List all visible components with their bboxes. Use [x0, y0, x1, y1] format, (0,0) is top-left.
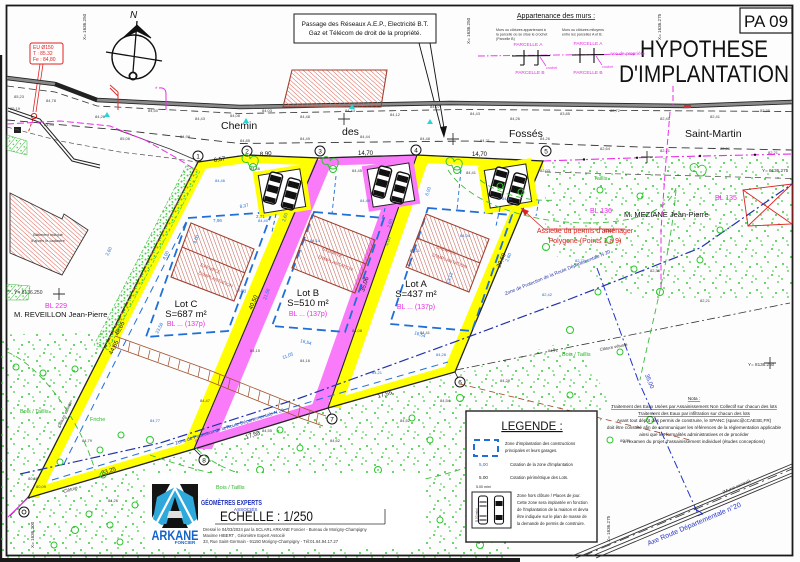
svg-text:84,41: 84,41	[502, 196, 513, 201]
svg-text:5.00: 5.00	[479, 475, 488, 480]
svg-text:84,62: 84,62	[330, 438, 341, 443]
svg-text:N: N	[130, 10, 138, 21]
svg-text:S=687 m²: S=687 m²	[165, 309, 206, 320]
svg-text:Zone d'implantation des constr: Zone d'implantation des constructions	[505, 441, 575, 446]
svg-text:Cette zone sera implantée en f: Cette zone sera implantée en fonction	[517, 500, 588, 505]
svg-text:84,45: 84,45	[352, 168, 363, 173]
svg-text:82,64: 82,64	[600, 146, 611, 151]
svg-text:84,77: 84,77	[150, 418, 161, 423]
svg-text:80,09: 80,09	[36, 484, 47, 489]
svg-text:82,71: 82,71	[575, 258, 586, 263]
svg-text:84,21: 84,21	[372, 370, 383, 375]
svg-text:6: 6	[458, 380, 462, 387]
svg-text:axe de propriété: axe de propriété	[610, 51, 645, 57]
svg-text:X= 1636.275: X= 1636.275	[657, 13, 662, 40]
svg-text:Nota :: Nota :	[688, 396, 700, 401]
svg-text:14,70: 14,70	[358, 151, 374, 157]
svg-text:crochet: crochet	[602, 65, 613, 69]
svg-text:84,26: 84,26	[510, 116, 521, 121]
svg-text:PARCELLE B: PARCELLE B	[515, 70, 544, 76]
svg-text:84,44: 84,44	[360, 134, 371, 139]
svg-text:7,96: 7,96	[213, 218, 222, 223]
svg-text:PARCELLE A: PARCELLE A	[514, 42, 544, 48]
svg-text:des: des	[342, 126, 359, 138]
svg-text:84,85: 84,85	[240, 138, 251, 143]
svg-text:85,19: 85,19	[10, 106, 21, 111]
svg-text:X= 1636.200: X= 1636.200	[30, 521, 35, 548]
svg-text:LEGENDE :: LEGENDE :	[501, 421, 562, 433]
svg-text:Bois / Taillis: Bois / Taillis	[216, 485, 245, 491]
svg-text:PARCELLE B: PARCELLE B	[573, 70, 602, 76]
svg-text:84,15: 84,15	[250, 348, 261, 353]
svg-text:84,49: 84,49	[300, 136, 311, 141]
svg-text:la parcelle où se situe le cro: la parcelle où se situe le crochet	[496, 33, 547, 37]
svg-text:d'après le cadastre: d'après le cadastre	[31, 238, 65, 243]
svg-text:Appartenance des murs :: Appartenance des murs :	[517, 13, 595, 20]
svg-text:83,85: 83,85	[560, 111, 571, 116]
svg-text:84,43: 84,43	[195, 116, 206, 121]
svg-text:X= 1636.275: X= 1636.275	[606, 515, 611, 542]
svg-text:Bois / Taillis: Bois / Taillis	[562, 352, 591, 358]
svg-text:de l'implantation de la maison: de l'implantation de la maison et devra	[517, 507, 589, 512]
svg-text:84,03: 84,03	[262, 108, 273, 113]
svg-text:82,21: 82,21	[768, 150, 779, 155]
svg-text:Y= 8136.250: Y= 8136.250	[14, 290, 43, 296]
svg-text:M. REVEILLON Jean-Pierre: M. REVEILLON Jean-Pierre	[14, 310, 107, 319]
svg-text:entre les parcelles A et B.: entre les parcelles A et B.	[562, 33, 603, 37]
svg-text:84,52: 84,52	[400, 418, 411, 423]
svg-text:Avant tout dépôt des permis de: Avant tout dépôt des permis de construir…	[617, 418, 772, 423]
svg-text:Chemin: Chemin	[221, 120, 257, 132]
svg-text:crochet: crochet	[546, 66, 557, 70]
svg-text:84,54: 84,54	[440, 398, 451, 403]
svg-text:Taillis: Taillis	[594, 176, 608, 182]
svg-text:Bâtiment indiqué: Bâtiment indiqué	[33, 232, 64, 237]
svg-text:84,14: 84,14	[310, 238, 321, 243]
svg-text:5,00: 5,00	[479, 462, 488, 467]
svg-text:84,55: 84,55	[262, 428, 273, 433]
svg-text:84,08: 84,08	[352, 328, 363, 333]
svg-text:principales et leurs garages.: principales et leurs garages.	[505, 448, 557, 453]
svg-text:84,43: 84,43	[345, 108, 356, 113]
svg-text:8,90: 8,90	[260, 151, 273, 158]
svg-text:82,03: 82,03	[540, 168, 551, 173]
svg-text:82,06: 82,06	[720, 146, 731, 151]
svg-text:84,26: 84,26	[108, 498, 119, 503]
svg-text:84,43: 84,43	[470, 111, 481, 116]
svg-text:82,36: 82,36	[650, 268, 661, 273]
svg-text:Murs ou clôtures mitoyens: Murs ou clôtures mitoyens	[562, 28, 604, 32]
svg-text:ECHELLE : 1/250: ECHELLE : 1/250	[220, 509, 313, 524]
svg-text:BL 135: BL 135	[715, 195, 737, 202]
svg-text:84,12: 84,12	[390, 112, 401, 117]
svg-text:84,40: 84,40	[258, 218, 269, 223]
svg-text:82,41: 82,41	[710, 114, 721, 119]
svg-text:84,49: 84,49	[360, 198, 371, 203]
svg-text:84,26: 84,26	[95, 114, 106, 119]
svg-text:84,71: 84,71	[548, 348, 559, 353]
svg-text:Murs ou clôtures appartenant à: Murs ou clôtures appartenant à	[496, 28, 546, 32]
svg-text:82,21: 82,21	[660, 148, 671, 153]
svg-text:BL ... (137p): BL ... (137p)	[167, 321, 205, 328]
svg-text:82,35: 82,35	[760, 108, 771, 113]
svg-text:84,08: 84,08	[230, 113, 241, 118]
svg-text:BL 229: BL 229	[45, 303, 67, 310]
svg-text:8: 8	[202, 458, 206, 465]
svg-text:84,50: 84,50	[148, 108, 159, 113]
svg-text:84,27: 84,27	[430, 104, 441, 109]
svg-text:GÉOMÈTRES EXPERTS: GÉOMÈTRES EXPERTS	[201, 498, 262, 507]
svg-text:14,70: 14,70	[472, 152, 488, 158]
svg-text:82,21: 82,21	[700, 298, 711, 303]
svg-text:Assiette du permis d'aménager: Assiette du permis d'aménager	[537, 228, 634, 235]
svg-text:84,47: 84,47	[200, 398, 211, 403]
svg-text:84,04: 84,04	[460, 233, 471, 238]
svg-text:85,23: 85,23	[14, 94, 25, 99]
svg-text:84,21: 84,21	[410, 248, 421, 253]
svg-text:5: 5	[544, 149, 548, 156]
svg-text:Bois / Taillis: Bois / Taillis	[20, 409, 49, 415]
svg-text:84,78: 84,78	[46, 98, 57, 103]
svg-text:84,26: 84,26	[540, 136, 551, 141]
svg-text:doit être consulté afin de com: doit être consulté afin de communiquer l…	[607, 425, 782, 430]
svg-text:Maxime HIBERT , Géomètre Exper: Maxime HIBERT , Géomètre Expert Associé	[203, 533, 286, 538]
svg-text:BL ... (137p): BL ... (137p)	[289, 311, 327, 318]
svg-text:82,62: 82,62	[604, 228, 615, 233]
svg-text:5.00 mini: 5.00 mini	[476, 485, 491, 489]
svg-text:84,41: 84,41	[420, 330, 431, 335]
svg-text:82,72: 82,72	[610, 108, 621, 113]
svg-text:BL ... (137p): BL ... (137p)	[397, 304, 435, 311]
svg-text:Zone hors clôture / Places de: Zone hors clôture / Places de jour.	[517, 493, 581, 498]
svg-text:Friche: Friche	[90, 417, 105, 423]
svg-text:PARCELLE A: PARCELLE A	[574, 41, 604, 47]
svg-text:84,79: 84,79	[82, 438, 93, 443]
svg-text:7: 7	[330, 417, 334, 424]
svg-text:3: 3	[318, 149, 322, 156]
svg-text:84,46: 84,46	[215, 178, 226, 183]
svg-text:84,98: 84,98	[180, 134, 191, 139]
svg-text:85,06: 85,06	[120, 136, 131, 141]
svg-text:Fossés: Fossés	[509, 128, 543, 140]
svg-text:84,16: 84,16	[300, 358, 311, 363]
svg-text:1: 1	[196, 154, 200, 161]
svg-text:Saint-Martin: Saint-Martin	[685, 128, 742, 140]
svg-text:84,21: 84,21	[480, 138, 491, 143]
svg-text:4: 4	[414, 148, 418, 155]
svg-text:ainsi que les formalités admin: ainsi que les formalités administratives…	[639, 432, 749, 437]
svg-text:84,48: 84,48	[420, 136, 431, 141]
svg-text:Passage des Réseaux A.E.P., E: Passage des Réseaux A.E.P., Electricité …	[302, 21, 429, 28]
svg-text:Y= 8136.275: Y= 8136.275	[762, 168, 789, 173]
svg-text:X= 1636.250: X= 1636.250	[82, 13, 87, 40]
svg-text:Traitement des Eaux par infilt: Traitement des Eaux par infiltration sur…	[638, 411, 751, 416]
svg-text:D'IMPLANTATION: D'IMPLANTATION	[619, 61, 789, 88]
svg-text:(Parcelle B): (Parcelle B)	[496, 37, 515, 41]
svg-text:84,48: 84,48	[300, 114, 311, 119]
svg-text:BL 136: BL 136	[590, 208, 612, 215]
svg-text:Cotation périmétrique des Lots: Cotation périmétrique des Lots.	[510, 475, 568, 480]
svg-text:84,46: 84,46	[250, 166, 261, 171]
svg-text:84,28: 84,28	[436, 352, 447, 357]
svg-text:Fe : 84,80: Fe : 84,80	[33, 57, 56, 63]
svg-text:Traitement des Eaux Usées par: Traitement des Eaux Usées par Assainisse…	[611, 404, 777, 409]
svg-text:S=510 m²: S=510 m²	[287, 298, 328, 309]
svg-text:être indiquée sur le plan de m: être indiquée sur le plan de masse de	[517, 514, 588, 519]
svg-text:Y= 8136.250: Y= 8136.250	[748, 362, 775, 367]
svg-text:la demande de permis de constr: la demande de permis de construire.	[517, 521, 585, 526]
svg-text:33, Rue Saint-Germain - 91150: 33, Rue Saint-Germain - 91150 Morigny-Ch…	[203, 539, 339, 544]
svg-text:PA 09: PA 09	[744, 12, 788, 31]
svg-text:X= 1636.250: X= 1636.250	[466, 17, 471, 44]
svg-text:84,41: 84,41	[466, 170, 477, 175]
svg-text:FONCIER: FONCIER	[175, 540, 196, 545]
svg-text:82,45: 82,45	[660, 116, 671, 121]
svg-text:Cotation de la zone d'implant: Cotation de la zone d'implantation	[510, 462, 574, 467]
svg-text:S=437 m²: S=437 m²	[395, 289, 436, 300]
svg-text:80,58: 80,58	[28, 476, 39, 481]
svg-text:82,42: 82,42	[542, 292, 553, 297]
svg-text:à l'examen du projet d'assaini: à l'examen du projet d'assainissement in…	[623, 439, 765, 444]
svg-text:84,29: 84,29	[500, 378, 511, 383]
svg-text:Gaz et Télécom de droit de la: Gaz et Télécom de droit de la propriété.	[309, 30, 422, 37]
svg-text:84,95: 84,95	[44, 122, 55, 127]
svg-text:Dressé le 04/03/2024 par la SC: Dressé le 04/03/2024 par la SCLARL ARKAN…	[203, 527, 368, 532]
